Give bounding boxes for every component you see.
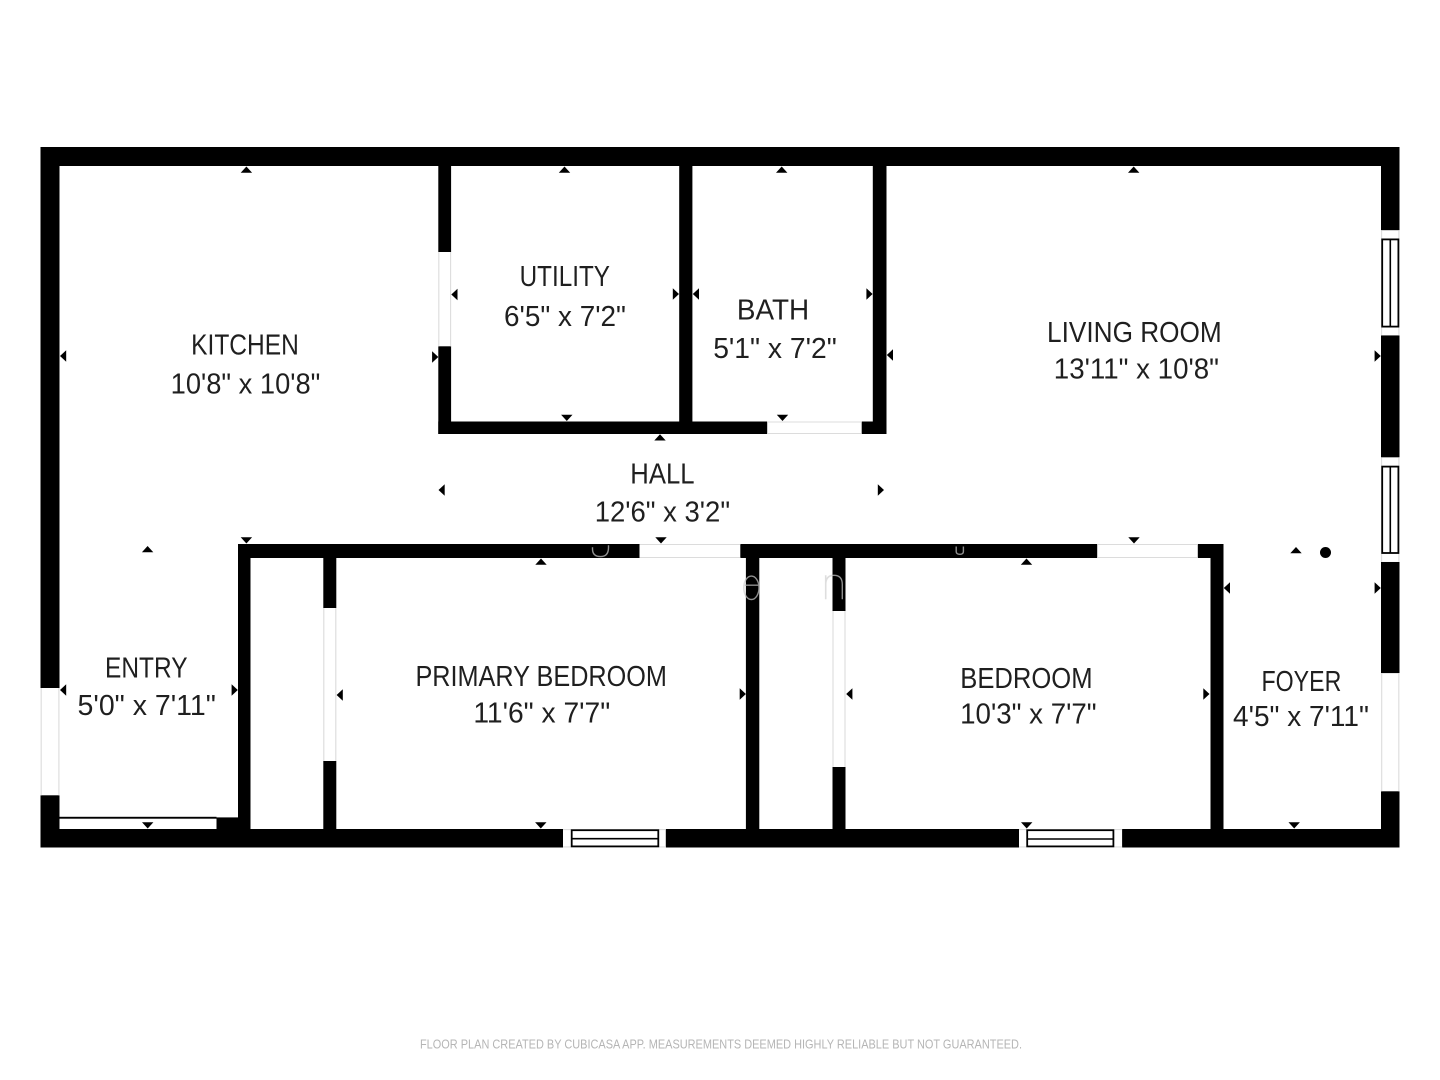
svg-text:BATH: BATH — [737, 294, 809, 326]
svg-text:10'8" x 10'8": 10'8" x 10'8" — [171, 368, 321, 400]
svg-text:5'0" x 7'11": 5'0" x 7'11" — [78, 690, 216, 722]
svg-text:11'6" x 7'7": 11'6" x 7'7" — [473, 698, 610, 730]
svg-text:HALL: HALL — [630, 458, 694, 490]
svg-text:5'1" x 7'2": 5'1" x 7'2" — [713, 333, 837, 365]
svg-text:10'3" x 7'7": 10'3" x 7'7" — [960, 698, 1097, 730]
svg-text:13'11" x 10'8": 13'11" x 10'8" — [1054, 354, 1219, 386]
svg-text:FOYER: FOYER — [1262, 666, 1342, 698]
svg-text:ENTRY: ENTRY — [105, 653, 188, 685]
svg-text:FLOOR PLAN CREATED BY CUBICASA: FLOOR PLAN CREATED BY CUBICASA APP. MEAS… — [420, 1037, 1022, 1052]
svg-text:6'5" x 7'2": 6'5" x 7'2" — [504, 301, 626, 333]
svg-text:PRIMARY BEDROOM: PRIMARY BEDROOM — [415, 661, 667, 693]
svg-text:UTILITY: UTILITY — [520, 261, 610, 293]
svg-text:KITCHEN: KITCHEN — [191, 329, 299, 361]
svg-text:LIVING ROOM: LIVING ROOM — [1047, 317, 1222, 349]
svg-text:12'6" x 3'2": 12'6" x 3'2" — [595, 497, 730, 529]
svg-text:4'5" x 7'11": 4'5" x 7'11" — [1233, 701, 1369, 733]
svg-text:BEDROOM: BEDROOM — [960, 663, 1092, 695]
